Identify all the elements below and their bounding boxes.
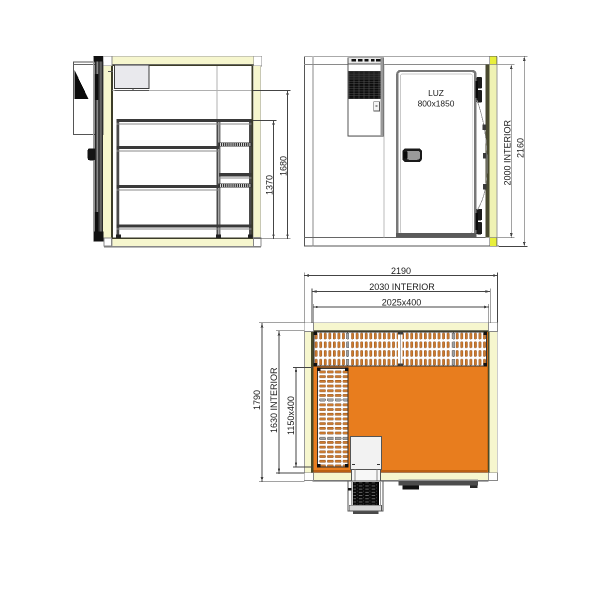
svg-text:LUZ: LUZ [428, 88, 444, 98]
svg-text:2030 INTERIOR: 2030 INTERIOR [369, 282, 435, 292]
svg-text:1370: 1370 [265, 175, 275, 195]
svg-text:2000 INTERIOR: 2000 INTERIOR [503, 119, 513, 185]
svg-text:2190: 2190 [391, 266, 411, 276]
svg-text:2160: 2160 [516, 138, 526, 158]
svg-text:1630 INTERIOR: 1630 INTERIOR [269, 367, 279, 433]
svg-text:2025x400: 2025x400 [382, 297, 422, 307]
svg-text:1680: 1680 [279, 156, 289, 176]
svg-text:800x1850: 800x1850 [418, 99, 455, 109]
svg-text:1790: 1790 [252, 390, 262, 410]
svg-text:1150x400: 1150x400 [286, 396, 296, 435]
